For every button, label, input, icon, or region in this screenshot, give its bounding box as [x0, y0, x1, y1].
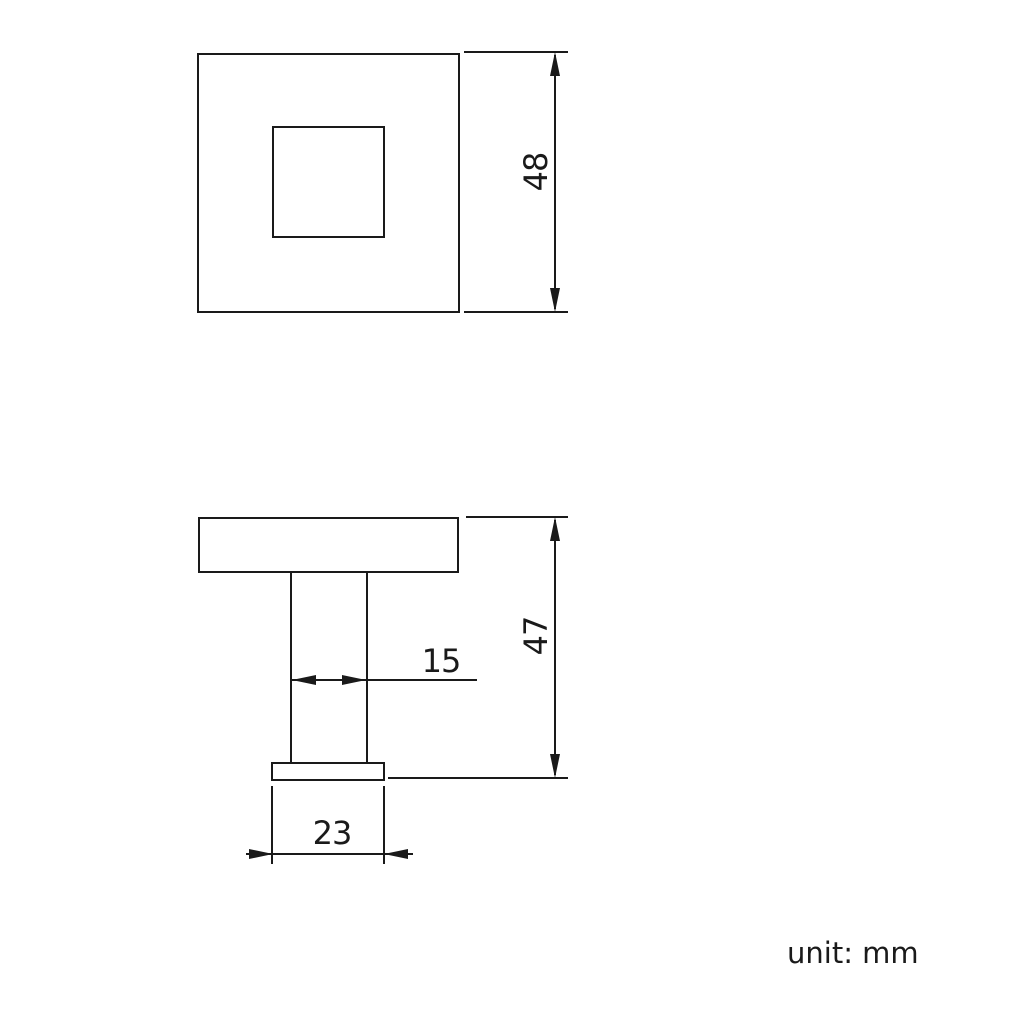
unit-note: unit: mm [787, 938, 919, 970]
technical-drawing-canvas: 48 15 47 23 [0, 0, 1024, 1024]
front-view-inner-square [272, 126, 385, 238]
dim-47-arrow-up-icon [550, 517, 560, 541]
dim-48-arrow-up-icon [550, 52, 560, 76]
dim-47-label: 47 [516, 596, 556, 676]
dim-15-arrow-left-icon [292, 675, 316, 685]
dim-47-arrow-down-icon [550, 754, 560, 778]
dim-48-arrow-down-icon [550, 288, 560, 312]
side-view-face-plate [198, 517, 459, 573]
dim-23-arrow-right-icon [249, 849, 273, 859]
dim-47-extension-line-bottom [388, 777, 568, 779]
dim-23-arrow-left-icon [384, 849, 408, 859]
side-view-stem [290, 572, 368, 763]
dim-15-label: 15 [401, 645, 481, 677]
dim-15-arrow-right-icon [342, 675, 366, 685]
side-view-base-flange [271, 762, 385, 781]
dim-23-label: 23 [292, 817, 372, 849]
dim-48-label: 48 [516, 132, 556, 212]
